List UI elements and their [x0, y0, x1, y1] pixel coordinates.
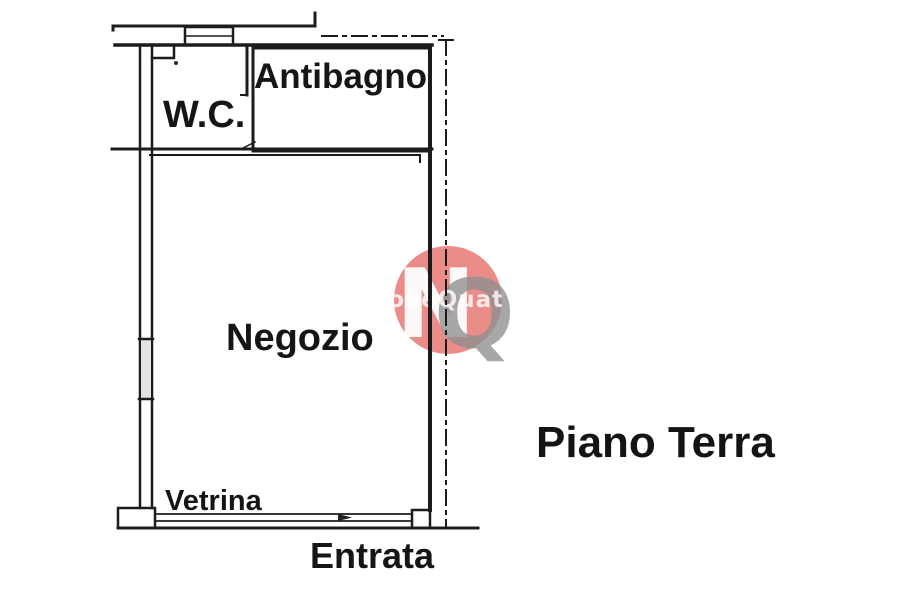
scan-speck — [174, 61, 178, 65]
annotation-entrata: Entrata — [310, 535, 435, 576]
watermark-text: NuoveQuattro — [351, 287, 546, 313]
wall-foot-right — [412, 510, 430, 528]
room-label-antibagno: Antibagno — [254, 57, 427, 96]
floorplan-canvas: N Q NuoveQuattro — [0, 0, 900, 600]
wc-corner-notch — [152, 46, 174, 58]
wall-foot-left — [118, 508, 155, 528]
floor-caption: Piano Terra — [536, 418, 775, 467]
agency-watermark: N Q NuoveQuattro — [351, 246, 546, 370]
room-label-wc: W.C. — [163, 94, 245, 136]
vetrina-arrow-icon — [338, 514, 352, 521]
window-left-glass — [141, 339, 151, 399]
annotation-vetrina: Vetrina — [165, 485, 263, 517]
floorplan-page: N Q NuoveQuattro — [0, 0, 900, 600]
room-label-negozio: Negozio — [226, 317, 374, 359]
